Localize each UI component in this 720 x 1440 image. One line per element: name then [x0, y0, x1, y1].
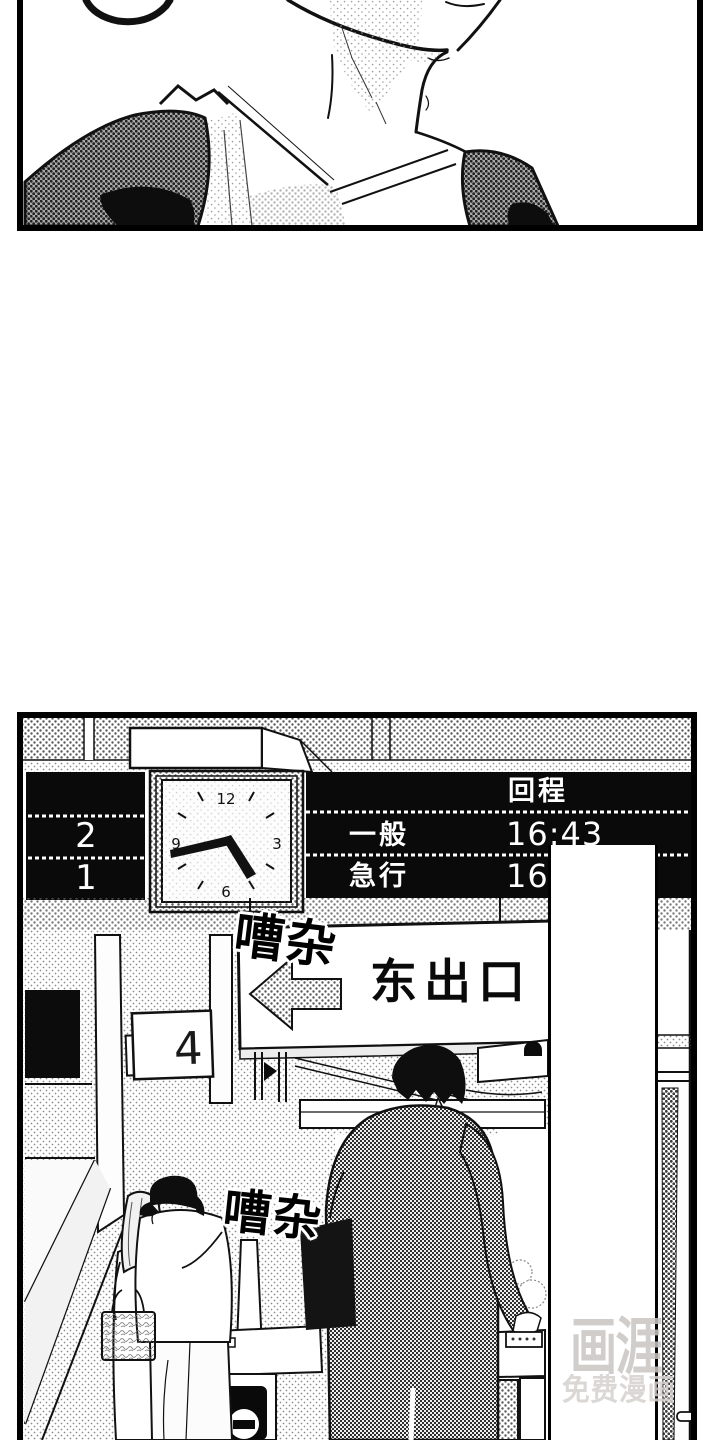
board-platform-number: 1: [66, 861, 106, 895]
board-row-time: 16: [506, 860, 549, 892]
clock-minute-hand: [170, 836, 230, 858]
platform-sign-label: 4: [173, 1026, 203, 1072]
ticket-gate-center: [196, 1240, 322, 1440]
pillar: [95, 935, 124, 1232]
backpack-strap-right: [462, 151, 558, 226]
panel-top-border: [20, 0, 700, 228]
escalator-rails: [25, 1158, 122, 1440]
pillar: [210, 935, 232, 1103]
clock-hour-hand: [222, 835, 256, 879]
gate-display-panel: [478, 1040, 548, 1082]
board-row-type: 急行: [349, 863, 409, 890]
couple: [102, 1176, 232, 1440]
right-wall: [658, 930, 694, 1440]
card-reader: [506, 1332, 542, 1347]
clock-numeral: 12: [216, 790, 235, 808]
manga-page: 12 3 6 9: [0, 0, 720, 1440]
board-row-type: 一般: [349, 822, 409, 849]
panel-top-drawing: [25, 0, 558, 226]
suit-arm: [460, 1124, 537, 1333]
hand: [513, 1312, 541, 1333]
board-header: 回程: [508, 778, 568, 805]
ticket-gate-right: [455, 1330, 545, 1440]
suit-jacket: [326, 1106, 499, 1440]
sfx-text: 嘈杂: [231, 910, 340, 972]
suit-man-hair: [392, 1045, 466, 1104]
ceiling-light-box: [130, 728, 332, 772]
clock-numeral: 6: [221, 883, 231, 901]
cap: [150, 1176, 199, 1210]
sfx-text: 嘈杂: [221, 1187, 325, 1245]
clock-numeral: 3: [272, 835, 282, 853]
clock-numeral: 9: [171, 835, 181, 853]
neck-shading: [330, 0, 422, 112]
ceiling-texture: [23, 717, 692, 760]
man-shirt: [135, 1210, 231, 1342]
woman-hair: [122, 1192, 160, 1272]
crowd-puffs: [505, 1260, 546, 1321]
exit-sign-label: 东出口: [370, 959, 532, 1006]
no-entry-icon: [229, 1409, 259, 1439]
man-in-suit: [300, 1045, 542, 1440]
station-clock: 12 3 6 9: [150, 771, 303, 912]
board-row-time: 16:43: [506, 818, 603, 850]
dark-doorway: [25, 990, 80, 1078]
board-platform-number: 2: [66, 819, 106, 853]
watermark-tagline: 免费漫画: [562, 1376, 676, 1406]
backpack-strap-left: [25, 111, 209, 226]
watermark-logo: 画涯: [570, 1316, 661, 1378]
gate-beam: [300, 1100, 545, 1128]
tote-bag: [102, 1290, 155, 1360]
gate-sensor: [524, 1041, 542, 1056]
